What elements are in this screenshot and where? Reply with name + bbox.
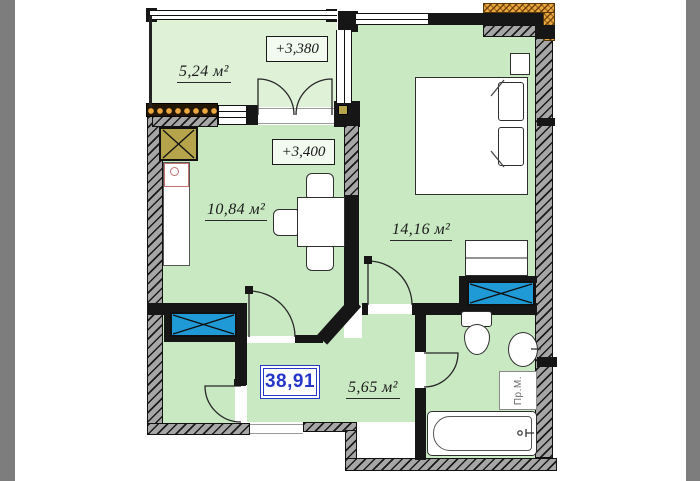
apartment-level-label-box: +3,400 xyxy=(272,139,335,165)
wall-tick-right xyxy=(537,357,557,367)
wall-exterior-bottom-left xyxy=(147,423,250,435)
window-balcony-top xyxy=(150,10,337,20)
total-area-box: 38,91 xyxy=(260,365,320,399)
window-kitchen-balcony xyxy=(218,105,247,125)
chimney-mini-square xyxy=(338,105,348,115)
wall-hall-bathroom xyxy=(415,388,426,460)
chair xyxy=(306,246,334,271)
chair xyxy=(306,173,334,198)
room-hallway-floor xyxy=(362,312,415,340)
wall-balcony-left xyxy=(149,16,152,107)
doorway-bathroom xyxy=(415,352,426,388)
doorway-bedroom xyxy=(368,304,412,314)
balcony-parapet xyxy=(146,103,218,117)
balcony-level-label-box: +3,380 xyxy=(266,36,328,62)
hallway-area-label: 5,65 м² xyxy=(346,379,400,399)
window-balcony-bedroom xyxy=(336,30,352,103)
wall-exterior-bottom-right xyxy=(345,458,557,471)
bedroom-area-label: 14,16 м² xyxy=(390,221,452,241)
total-area-value: 38,91 xyxy=(263,368,317,396)
wall-exterior-top-right xyxy=(483,25,543,37)
bathtub-inner xyxy=(433,416,532,451)
doorway-balcony xyxy=(258,108,334,124)
room-kitchen-floor xyxy=(247,308,344,338)
pillow xyxy=(498,127,524,166)
washing-machine: Пр.М. xyxy=(499,371,537,410)
washing-machine-label: Пр.М. xyxy=(513,376,524,405)
wardrobe xyxy=(465,240,528,276)
kitchen-sink-basin xyxy=(170,167,179,176)
kitchen-area-label: 10,84 м² xyxy=(205,201,267,221)
viewer-gutter-left xyxy=(0,0,15,481)
floor-plan-page: Пр.М. 5,24 м² +3,380 +3,400 10,84 м² 14,… xyxy=(0,0,700,481)
entrance-opening xyxy=(250,424,303,434)
balcony-area-label: 5,24 м² xyxy=(177,63,231,83)
dining-table xyxy=(297,197,345,247)
vent-shaft-storage xyxy=(170,312,237,337)
bathroom-sink xyxy=(508,332,538,367)
doorway-storage xyxy=(236,385,246,422)
chimney-shaft xyxy=(159,127,198,161)
wall-kitchen-hall xyxy=(295,335,323,343)
wall-exterior-right xyxy=(535,37,553,458)
window-bedroom-top xyxy=(356,13,428,25)
wall-bedroom-top xyxy=(427,13,543,25)
wall-tick-right xyxy=(537,118,555,126)
vent-shaft-bathroom xyxy=(467,281,535,306)
wall-post xyxy=(246,105,258,125)
pillow xyxy=(498,82,524,121)
wall-kitchen-bedroom xyxy=(344,195,359,307)
apartment-level-label: +3,400 xyxy=(282,144,326,161)
nightstand xyxy=(510,53,530,75)
wall-bedroom-corner-block xyxy=(338,11,358,32)
balcony-level-label: +3,380 xyxy=(275,41,319,58)
doorway-kitchen xyxy=(247,336,295,343)
wall-corner-top-right xyxy=(535,25,555,39)
chair xyxy=(273,209,298,236)
wall-kitchen-bedroom xyxy=(344,125,359,197)
viewer-gutter-right xyxy=(686,0,700,481)
wall-hall-bathroom xyxy=(415,312,426,352)
